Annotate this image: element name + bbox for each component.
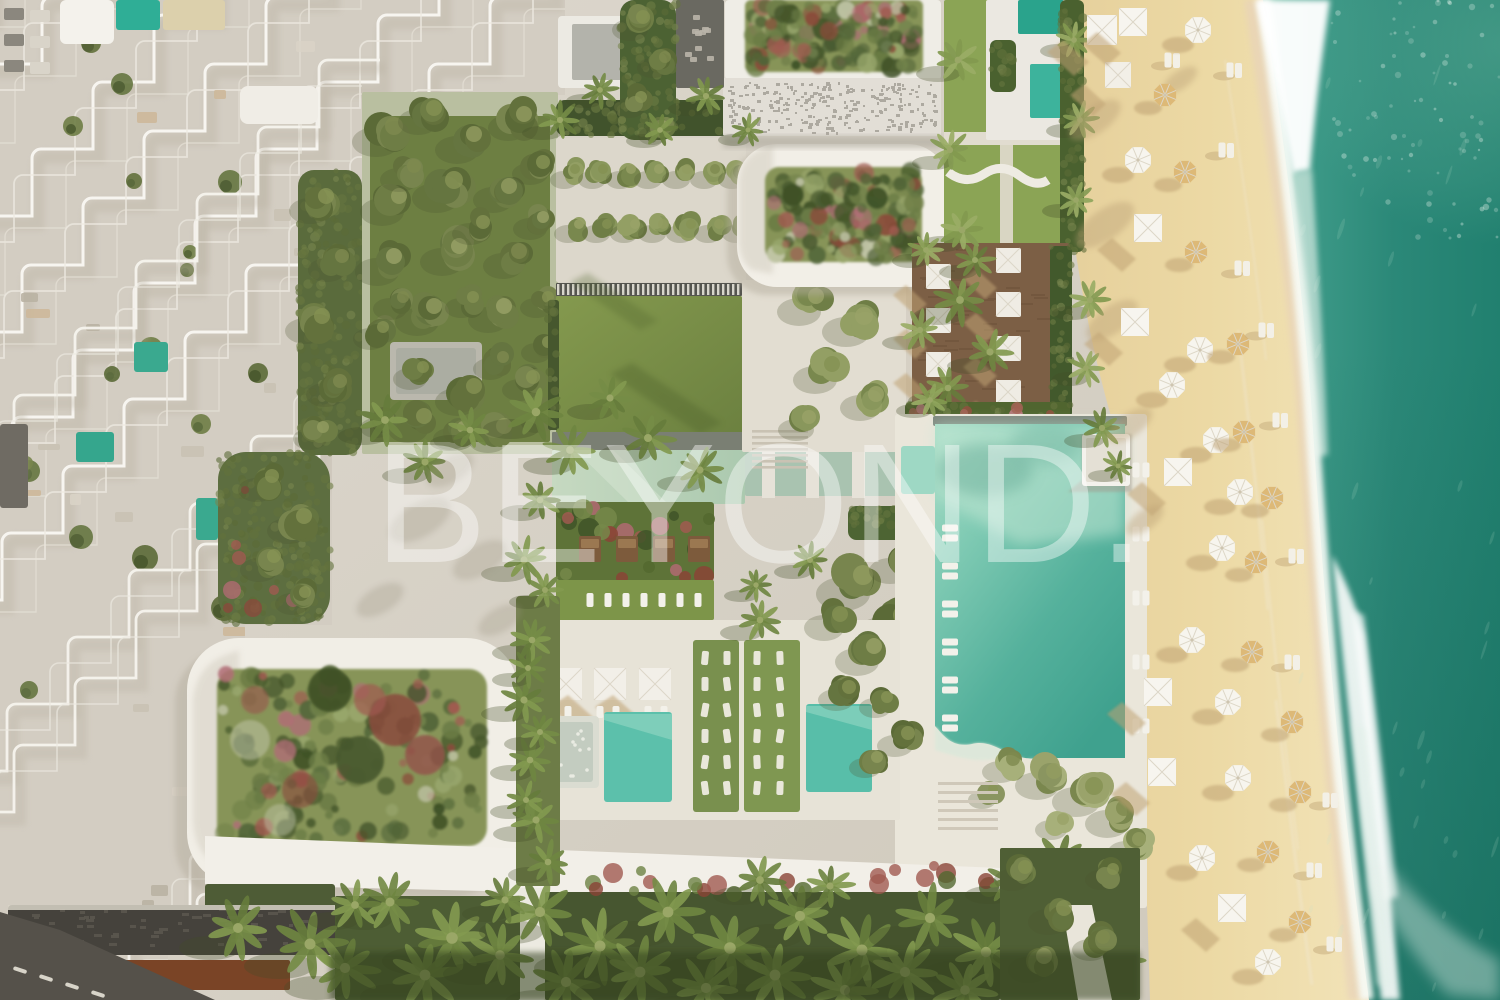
svg-text:BEYOND.: BEYOND. bbox=[374, 409, 1146, 599]
